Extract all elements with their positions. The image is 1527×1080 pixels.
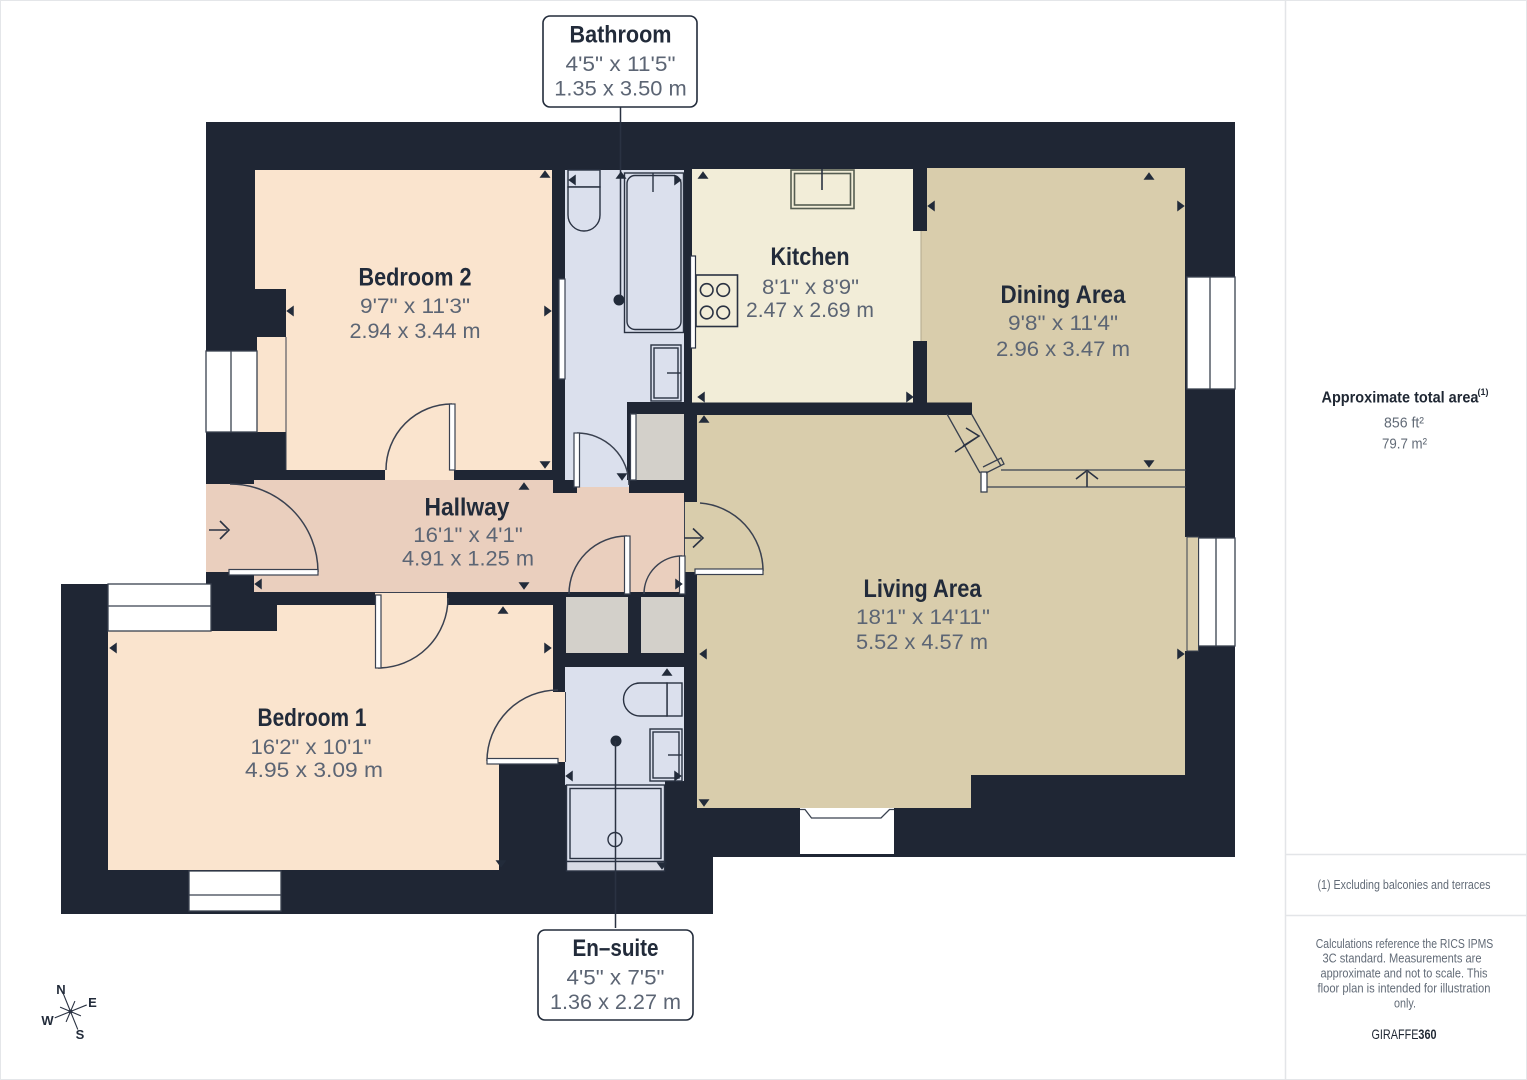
svg-text:16'1" x 4'1": 16'1" x 4'1" xyxy=(413,523,523,547)
svg-text:(1) Excluding balconies and te: (1) Excluding balconies and terraces xyxy=(1318,878,1491,892)
svg-text:approximate and not to scale.: approximate and not to scale. This xyxy=(1321,967,1488,981)
svg-text:floor plan is intended for ill: floor plan is intended for illustration xyxy=(1318,982,1491,996)
svg-text:Living Area: Living Area xyxy=(864,575,983,603)
svg-text:Bedroom 2: Bedroom 2 xyxy=(359,264,472,292)
svg-text:2.47 x 2.69 m: 2.47 x 2.69 m xyxy=(746,298,874,322)
svg-text:9'8" x 11'4": 9'8" x 11'4" xyxy=(1008,311,1118,335)
svg-text:79.7 m²: 79.7 m² xyxy=(1382,436,1427,453)
svg-text:Kitchen: Kitchen xyxy=(771,243,850,271)
svg-text:(1): (1) xyxy=(1478,387,1489,397)
svg-text:Hallway: Hallway xyxy=(425,494,510,522)
svg-text:only.: only. xyxy=(1394,997,1416,1011)
svg-text:2.96 x 3.47 m: 2.96 x 3.47 m xyxy=(996,337,1130,361)
svg-text:5.52 x 4.57 m: 5.52 x 4.57 m xyxy=(856,630,988,654)
svg-text:4'5" x 7'5": 4'5" x 7'5" xyxy=(567,967,665,990)
svg-text:2.94 x 3.44 m: 2.94 x 3.44 m xyxy=(350,319,481,343)
svg-text:16'2" x 10'1": 16'2" x 10'1" xyxy=(251,735,372,759)
svg-text:Approximate total area: Approximate total area xyxy=(1322,390,1479,407)
svg-text:W: W xyxy=(41,1013,54,1028)
svg-text:En–suite: En–suite xyxy=(573,935,659,962)
svg-text:4.91 x 1.25 m: 4.91 x 1.25 m xyxy=(402,547,534,571)
svg-text:Bedroom 1: Bedroom 1 xyxy=(258,704,367,732)
svg-text:Calculations reference the RIC: Calculations reference the RICS IPMS xyxy=(1316,937,1494,951)
svg-text:Bathroom: Bathroom xyxy=(570,22,672,49)
svg-text:1.36 x 2.27 m: 1.36 x 2.27 m xyxy=(550,991,681,1014)
svg-text:4'5" x 11'5": 4'5" x 11'5" xyxy=(566,53,676,76)
svg-text:8'1" x 8'9": 8'1" x 8'9" xyxy=(762,275,859,299)
svg-text:GIRAFFE360: GIRAFFE360 xyxy=(1372,1026,1437,1042)
svg-text:E: E xyxy=(88,995,97,1010)
svg-text:N: N xyxy=(56,982,65,997)
svg-text:Dining Area: Dining Area xyxy=(1001,281,1127,309)
svg-text:1.35 x 3.50 m: 1.35 x 3.50 m xyxy=(554,78,687,101)
svg-text:856 ft²: 856 ft² xyxy=(1384,415,1424,432)
svg-text:S: S xyxy=(76,1027,85,1042)
svg-text:18'1" x 14'11": 18'1" x 14'11" xyxy=(856,605,990,629)
svg-text:3C standard. Measurements are: 3C standard. Measurements are xyxy=(1323,952,1482,966)
svg-text:4.95 x 3.09 m: 4.95 x 3.09 m xyxy=(245,758,383,782)
svg-text:9'7" x 11'3": 9'7" x 11'3" xyxy=(360,294,470,318)
